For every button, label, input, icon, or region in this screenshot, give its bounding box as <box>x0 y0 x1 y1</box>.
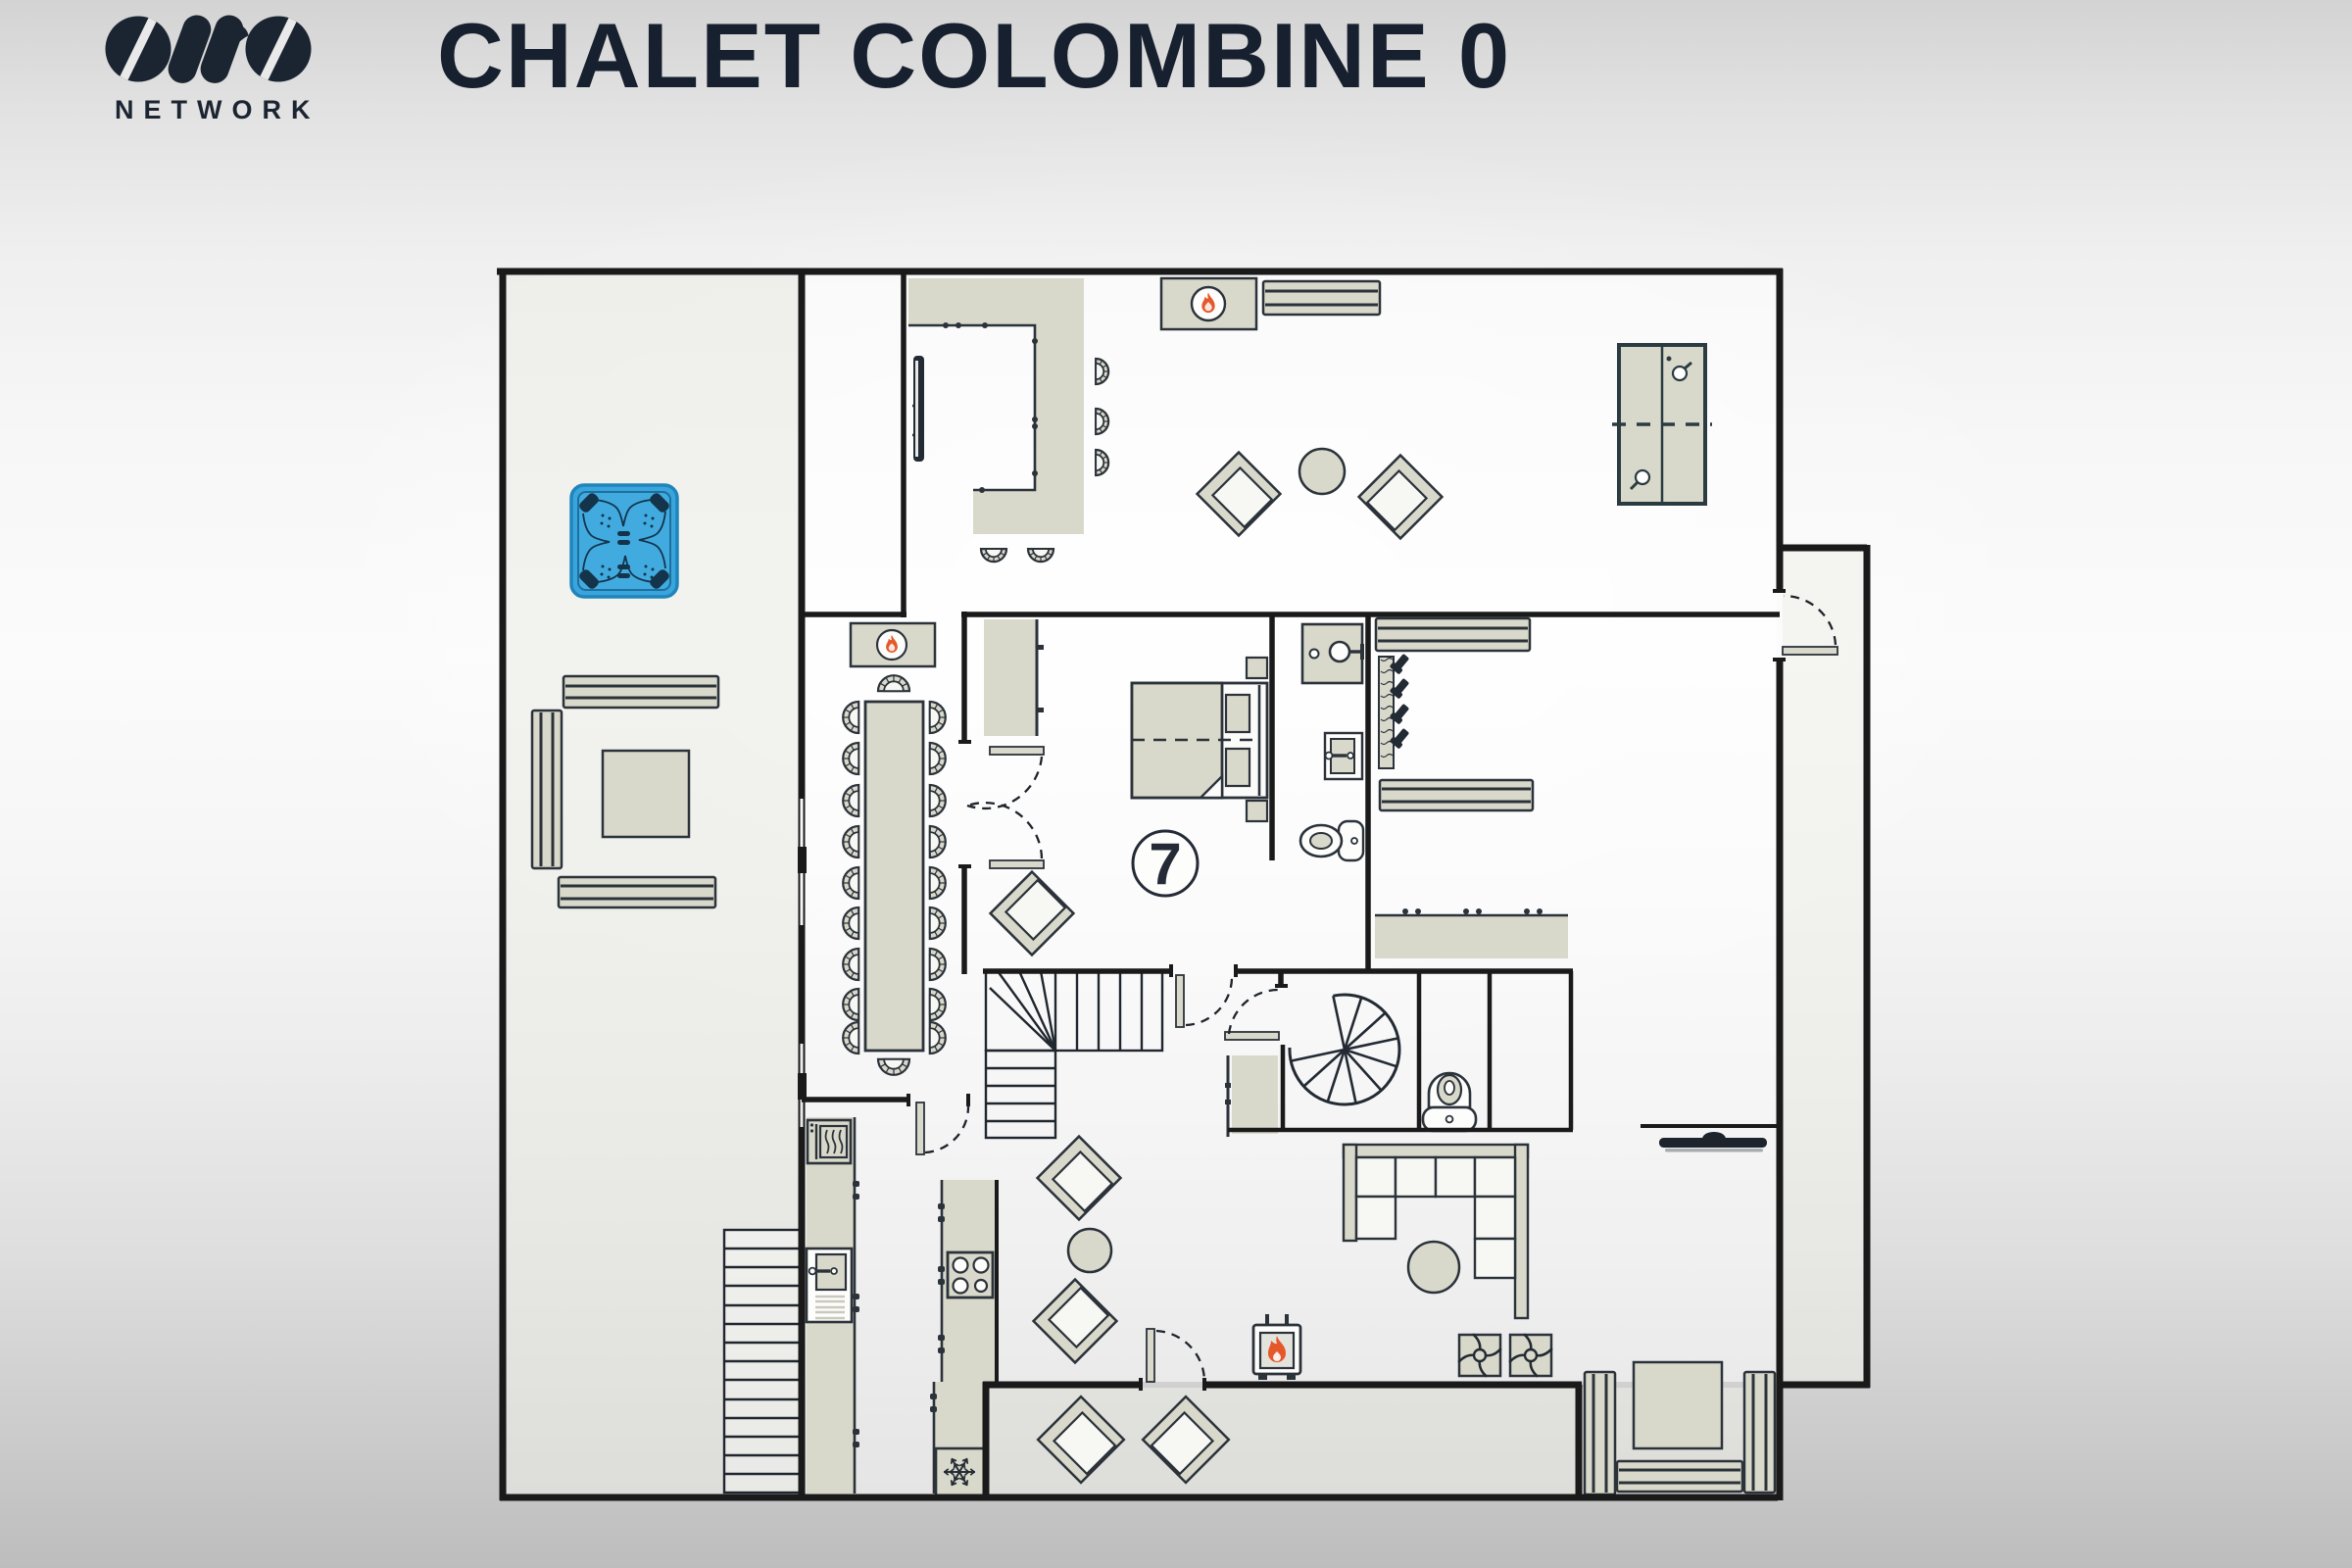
svg-text:7: 7 <box>1149 831 1181 897</box>
svg-text:NETWORK: NETWORK <box>115 95 319 124</box>
